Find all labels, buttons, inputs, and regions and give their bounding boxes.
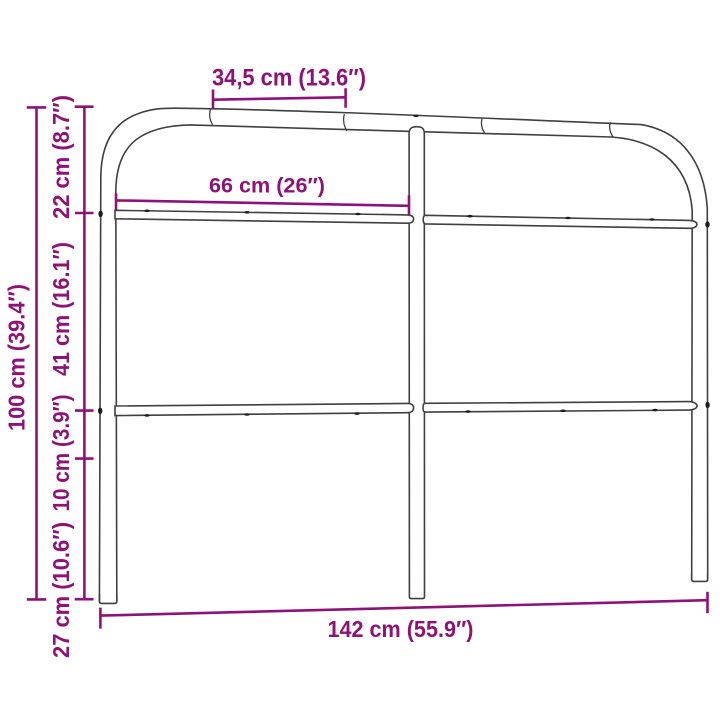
svg-text:10 cm (3.9″): 10 cm (3.9″) [48, 395, 74, 512]
svg-text:142 cm (55.9″): 142 cm (55.9″) [328, 616, 474, 642]
svg-text:41 cm (16.1″): 41 cm (16.1″) [48, 242, 74, 376]
svg-text:34,5 cm (13.6″): 34,5 cm (13.6″) [212, 65, 366, 92]
svg-text:66 cm (26″): 66 cm (26″) [209, 174, 325, 198]
svg-text:22 cm (8.7″): 22 cm (8.7″) [48, 95, 74, 219]
svg-text:100 cm (39.4″): 100 cm (39.4″) [4, 284, 30, 431]
svg-text:27 cm (10.6″): 27 cm (10.6″) [48, 522, 74, 658]
